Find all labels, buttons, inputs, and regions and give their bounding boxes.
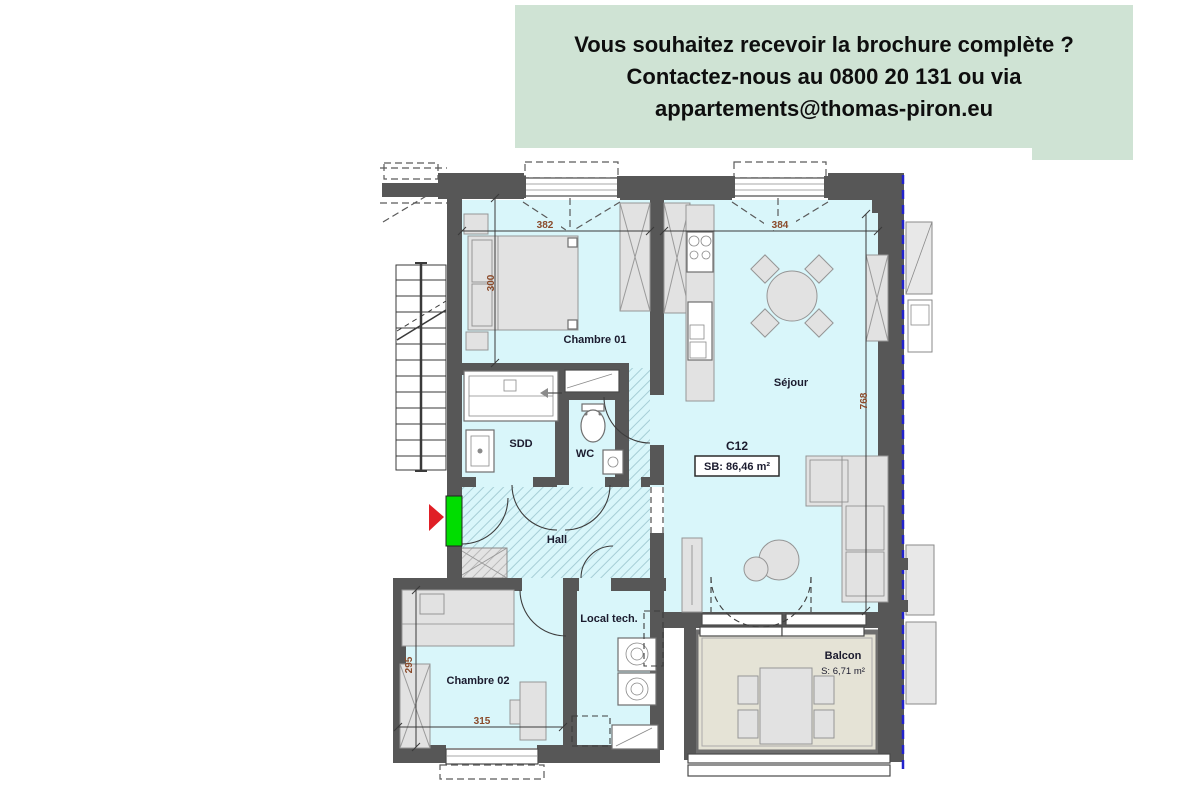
label-balcon: Balcon — [825, 650, 862, 662]
balcony-railing — [688, 754, 890, 763]
chambre02-window — [446, 749, 538, 764]
wc-window — [565, 370, 619, 392]
balcony-table — [760, 668, 812, 744]
entrance — [429, 496, 462, 546]
floor-plan: 382 384 300 768 295 315 Chambre 01 Séjou… — [0, 0, 1200, 800]
label-chambre01: Chambre 01 — [564, 334, 627, 346]
entrance-arrow-icon — [429, 504, 444, 531]
wc-sink — [603, 450, 623, 474]
dim-chambre02-height: 295 — [404, 656, 415, 673]
label-balcon-surface: S: 6,71 m² — [821, 666, 865, 677]
kitchen-sink — [688, 302, 712, 360]
label-hall: Hall — [547, 534, 567, 546]
unit-surface-label: SB: 86,46 m² — [704, 461, 770, 473]
label-sdd: SDD — [509, 438, 532, 450]
bed-chambre02 — [402, 590, 514, 646]
dim-chambre01-height: 300 — [486, 274, 497, 291]
stairs — [396, 262, 446, 472]
desk — [520, 682, 546, 740]
label-local-tech: Local tech. — [580, 613, 637, 625]
hall-sejour-opening — [650, 487, 664, 533]
dim-sejour-height: 768 — [859, 392, 870, 409]
dining-table — [767, 271, 817, 321]
dim-sejour-width: 384 — [772, 220, 789, 231]
dim-chambre02-width: 315 — [474, 716, 491, 727]
dim-chambre01-width: 382 — [537, 220, 554, 231]
entrance-door-marker — [446, 496, 462, 546]
label-chambre02: Chambre 02 — [447, 675, 510, 687]
label-wc: WC — [576, 448, 594, 460]
label-sejour: Séjour — [774, 377, 809, 389]
unit-code-label: C12 — [726, 439, 748, 453]
